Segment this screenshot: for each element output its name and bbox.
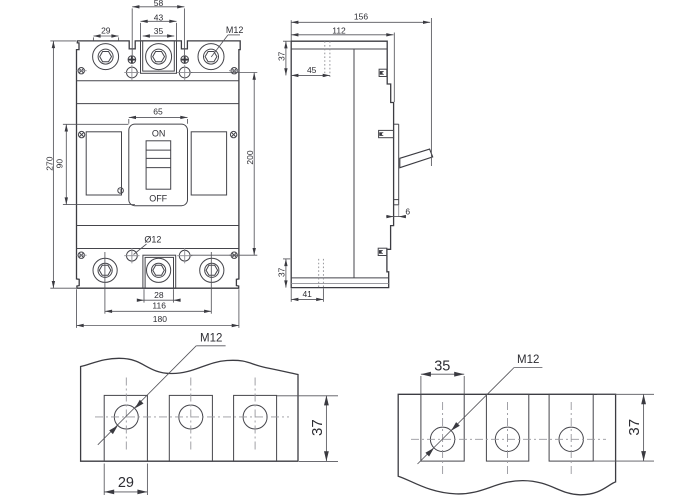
svg-text:29: 29 — [101, 26, 111, 36]
svg-text:Ø12: Ø12 — [144, 235, 161, 245]
svg-text:OFF: OFF — [149, 194, 167, 204]
svg-text:29: 29 — [118, 475, 134, 491]
svg-text:90: 90 — [55, 159, 65, 169]
svg-text:270: 270 — [44, 156, 54, 170]
svg-text:28: 28 — [154, 290, 164, 300]
svg-text:M12: M12 — [517, 354, 539, 366]
svg-text:M12: M12 — [226, 25, 244, 35]
svg-text:116: 116 — [152, 300, 166, 310]
svg-text:180: 180 — [153, 314, 167, 324]
svg-text:112: 112 — [332, 25, 346, 35]
svg-text:65: 65 — [153, 106, 163, 116]
svg-text:ON: ON — [152, 129, 166, 139]
svg-text:200: 200 — [245, 150, 255, 164]
svg-text:6: 6 — [405, 206, 410, 216]
svg-text:156: 156 — [354, 11, 368, 21]
svg-text:37: 37 — [277, 51, 287, 61]
svg-text:45: 45 — [307, 65, 317, 75]
svg-text:35: 35 — [154, 26, 164, 36]
svg-text:T: T — [119, 188, 122, 193]
svg-text:37: 37 — [276, 267, 286, 277]
svg-text:58: 58 — [154, 0, 164, 8]
svg-text:35: 35 — [434, 359, 450, 375]
svg-text:37: 37 — [309, 419, 326, 436]
svg-text:41: 41 — [302, 289, 312, 299]
svg-text:37: 37 — [626, 419, 643, 436]
svg-text:43: 43 — [154, 12, 164, 22]
svg-text:M12: M12 — [200, 333, 222, 345]
